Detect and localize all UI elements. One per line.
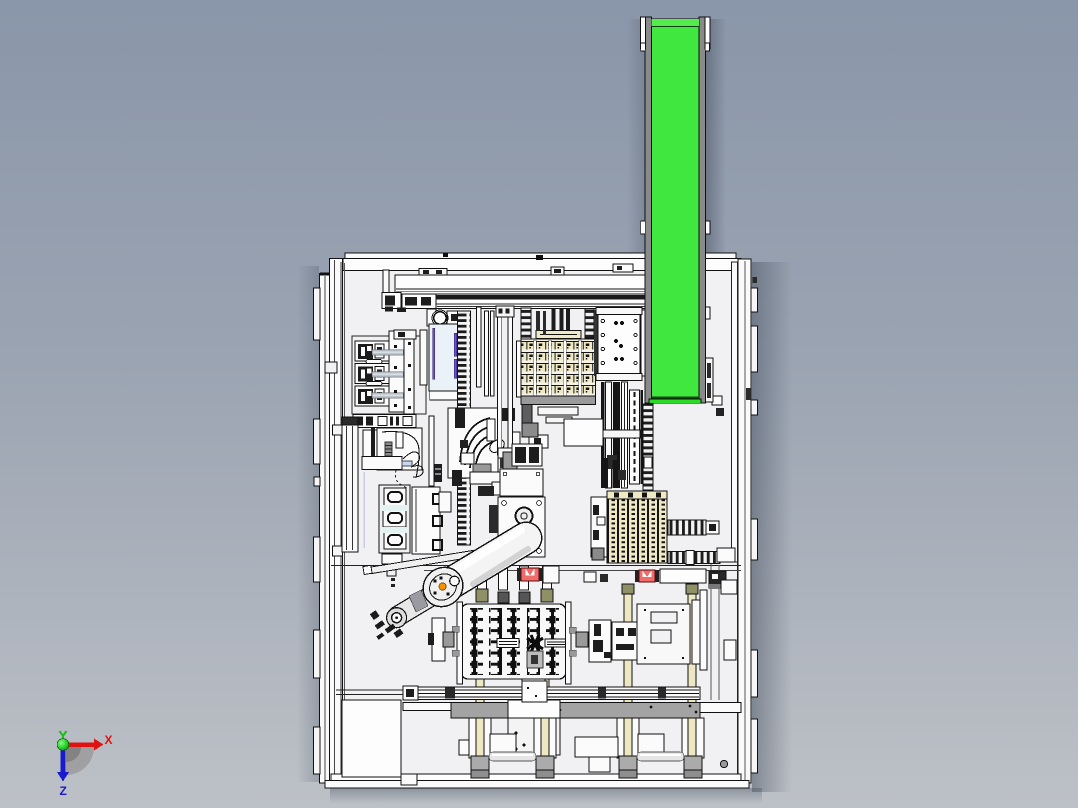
- svg-text:X: X: [105, 733, 113, 747]
- svg-text:Z: Z: [60, 784, 67, 798]
